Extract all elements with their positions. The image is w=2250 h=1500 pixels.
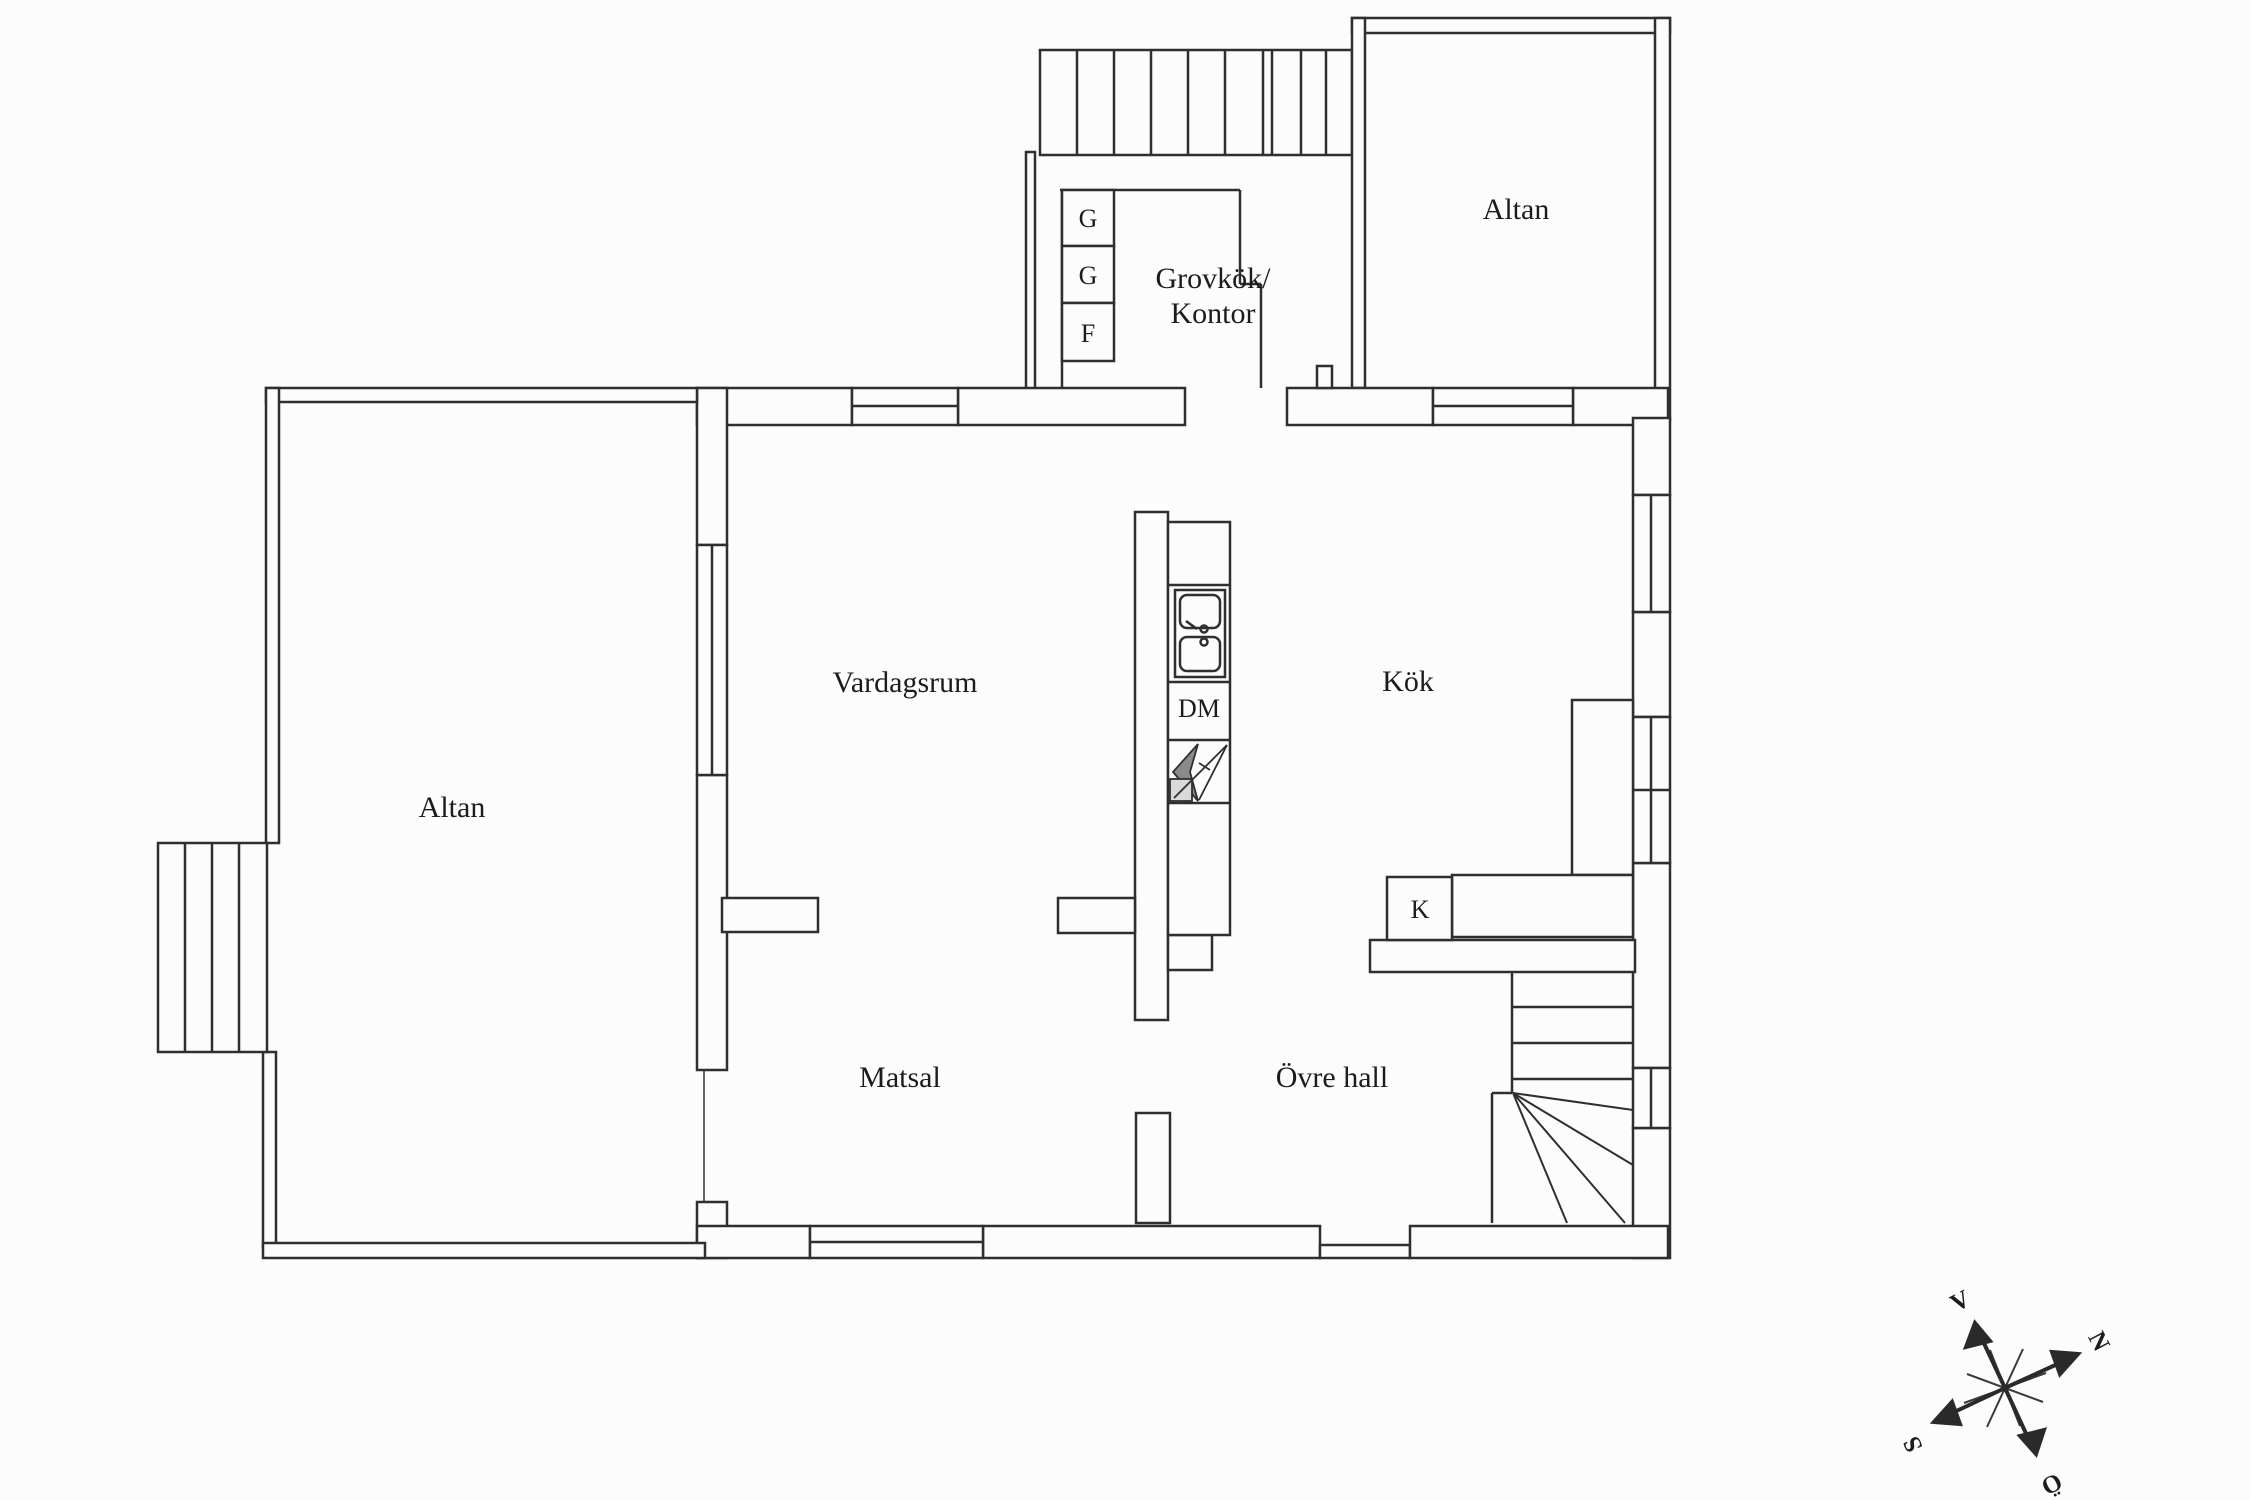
house-east-window-c <box>1633 1068 1670 1128</box>
label-vardagsrum: Vardagsrum <box>833 666 978 699</box>
house-top-window-2 <box>1433 388 1573 425</box>
kok-hall-wall <box>1370 940 1635 972</box>
label-cabinet-g2: G <box>1079 261 1098 290</box>
compass-arrow-east <box>2020 1430 2044 1454</box>
label-ovre-hall: Övre hall <box>1276 1061 1388 1094</box>
house-west-window <box>697 545 727 775</box>
interior-stairs <box>1492 972 1633 1223</box>
house-west-wall <box>697 388 727 1258</box>
label-altan-left: Altan <box>419 791 486 824</box>
compass-arrow-south <box>1934 1402 1960 1424</box>
label-matsal: Matsal <box>859 1061 941 1094</box>
compass-label-east: Ö <box>2037 1467 2067 1500</box>
matsal-wall-west-stub <box>722 898 818 932</box>
floor-plan-drawing: Vardagsrum Kök Altan Altan Matsal Övre h… <box>0 0 2250 1500</box>
compass-arrow-north <box>2052 1352 2078 1374</box>
compass-label-north: N <box>2082 1327 2114 1356</box>
kitchen-island <box>1168 522 1230 935</box>
label-cabinet-f: F <box>1081 319 1095 348</box>
island-stub-wall <box>1168 935 1212 970</box>
label-kok: Kök <box>1382 665 1434 698</box>
matsal-hall-divider <box>1136 1113 1170 1223</box>
label-grovkok-line1: Grovkök/ <box>1156 262 1272 295</box>
compass-label-west: V <box>1946 1285 1975 1317</box>
label-grovkok-line2: Kontor <box>1171 297 1256 330</box>
island-wall <box>1135 512 1168 1020</box>
house-east-window-a <box>1633 495 1670 612</box>
compass-label-south: S <box>1898 1432 1928 1456</box>
label-altan-top-right: Altan <box>1483 193 1550 226</box>
label-dishwasher: DM <box>1178 694 1220 723</box>
exterior-stairs-left <box>158 843 267 1052</box>
house-east-window-b <box>1633 717 1670 863</box>
grovkok-walls <box>1026 152 1035 390</box>
exterior-stairs-top <box>1040 50 1352 155</box>
compass-arrow-west <box>1966 1323 1990 1347</box>
house-top-window-1 <box>852 388 958 425</box>
house-bottom-window <box>810 1226 983 1258</box>
label-cabinet-g1: G <box>1079 204 1098 233</box>
floor-plan-page: Vardagsrum Kök Altan Altan Matsal Övre h… <box>0 0 2250 1500</box>
matsal-wall-east-stub <box>1058 898 1135 933</box>
label-fridge: K <box>1411 895 1430 924</box>
compass-rose: N V S Ö <box>1898 1285 2115 1500</box>
